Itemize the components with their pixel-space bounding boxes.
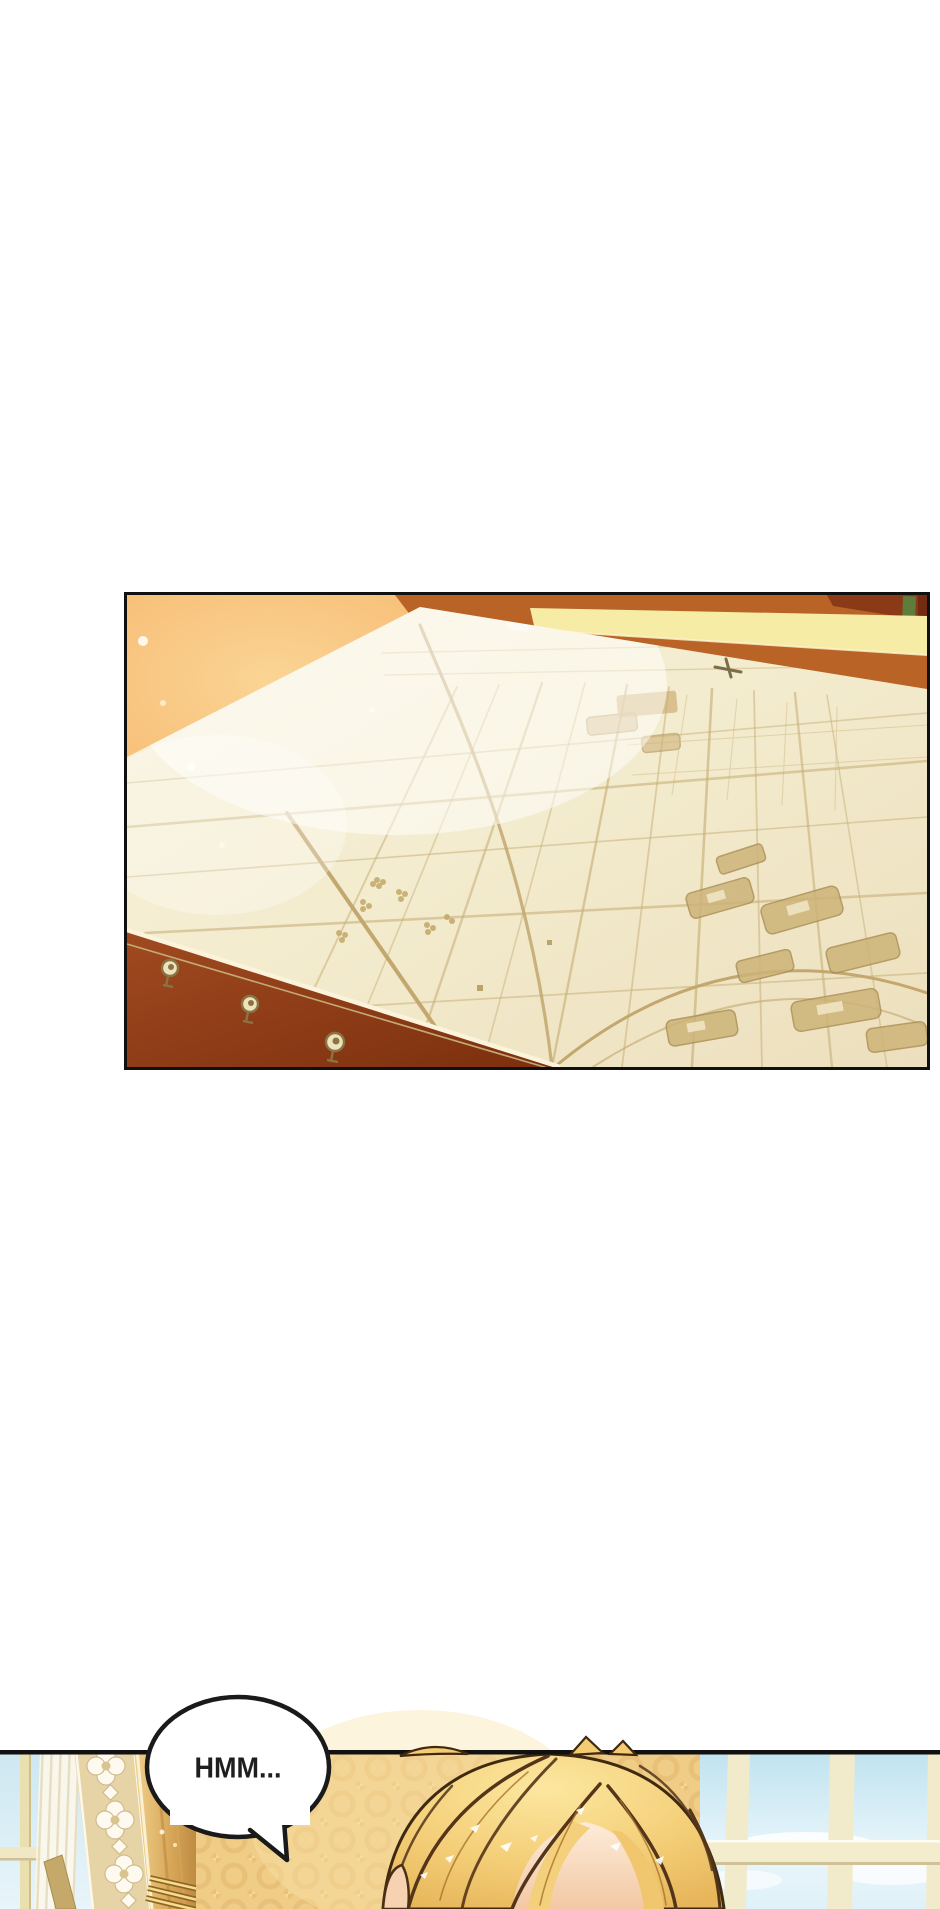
window-right [700,1750,940,1909]
speech-bubble-text: HMM... [147,1741,329,1796]
map-scene [127,595,927,1067]
map-on-table-panel [124,592,930,1070]
comic-page: HMM... [0,0,940,1909]
tail-base-cover [170,1803,310,1825]
